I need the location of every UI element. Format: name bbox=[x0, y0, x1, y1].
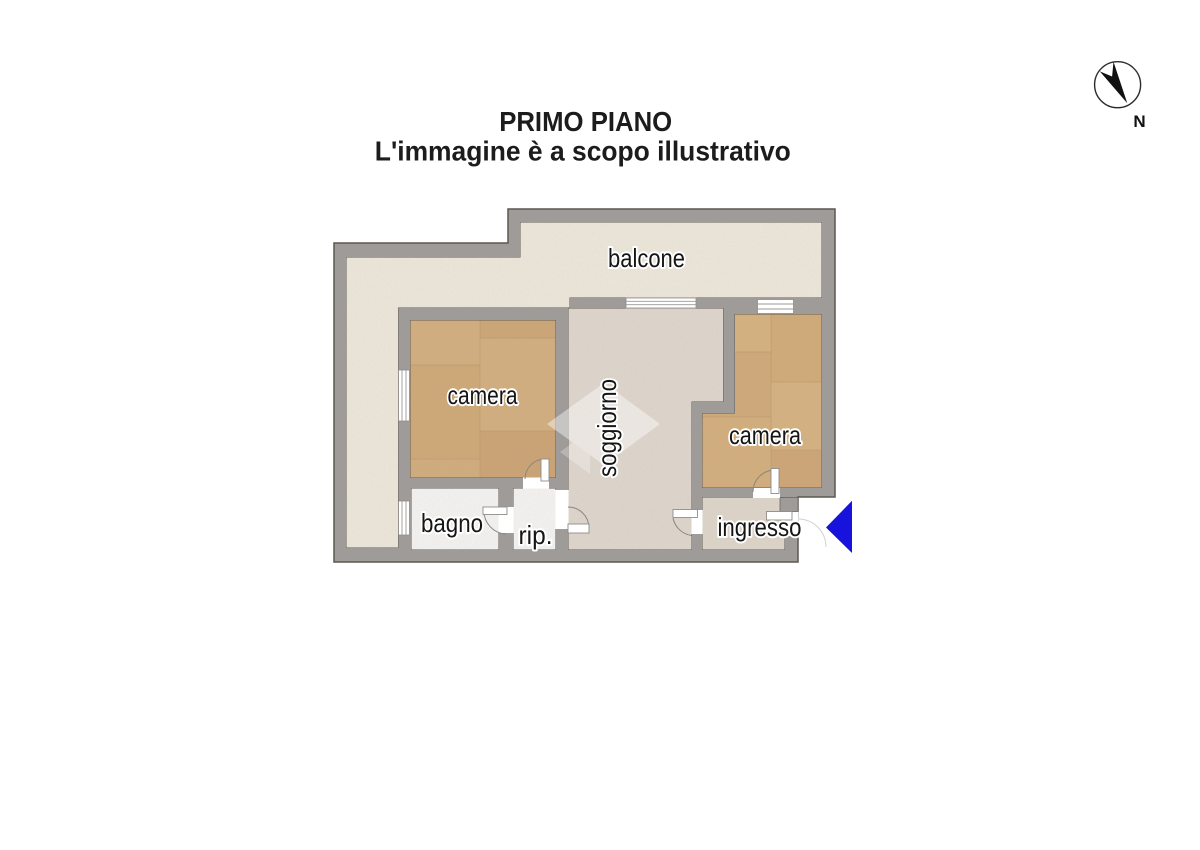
svg-text:bagno: bagno bbox=[421, 508, 483, 538]
svg-text:balcone: balcone bbox=[608, 243, 685, 273]
svg-text:PRIMO PIANO: PRIMO PIANO bbox=[499, 106, 672, 137]
svg-text:camera: camera bbox=[448, 380, 518, 410]
svg-text:ingresso: ingresso bbox=[718, 512, 802, 542]
svg-text:soggiorno: soggiorno bbox=[592, 379, 622, 477]
svg-text:camera: camera bbox=[729, 420, 801, 450]
svg-text:N: N bbox=[1133, 112, 1145, 131]
svg-text:L'immagine è a scopo illustrat: L'immagine è a scopo illustrativo bbox=[375, 136, 791, 167]
svg-text:rip.: rip. bbox=[519, 520, 553, 550]
